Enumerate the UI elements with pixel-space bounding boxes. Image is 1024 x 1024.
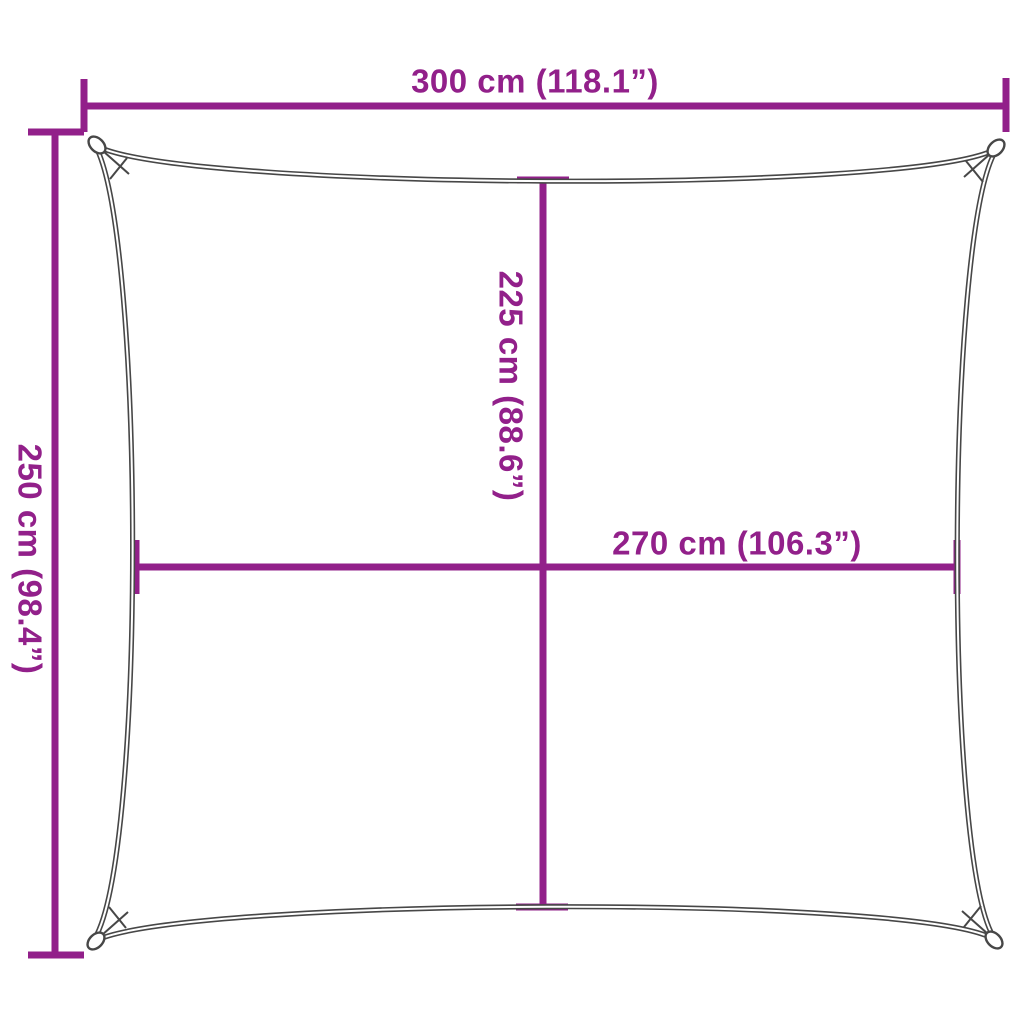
sail-edge-left-gap bbox=[95, 147, 133, 938]
corner-seam-chord bbox=[966, 161, 983, 182]
dimension-diagram: 300 cm (118.1”) 250 cm (98.4”) 225 cm (8… bbox=[0, 0, 1024, 1024]
corner-seam-chord bbox=[110, 158, 127, 179]
sail-edge-left bbox=[95, 147, 133, 938]
corner-seam-chord bbox=[964, 906, 981, 927]
dimension-label-center-width: 270 cm (106.3”) bbox=[612, 527, 862, 560]
dimension-label-left-height: 250 cm (98.4”) bbox=[14, 444, 47, 675]
corner-seam-chord bbox=[109, 907, 126, 928]
sail-edge-top bbox=[99, 147, 994, 181]
sail-edge-bottom bbox=[97, 907, 992, 940]
sail-edge-top-gap bbox=[99, 147, 994, 181]
sail-edge-right-gap bbox=[957, 152, 995, 936]
dimension-label-top-width: 300 cm (118.1”) bbox=[411, 65, 659, 98]
sail-edge-bottom-gap bbox=[97, 907, 992, 940]
diagram-drawing bbox=[0, 0, 1024, 1024]
dimension-label-center-height: 225 cm (88.6”) bbox=[495, 271, 528, 502]
sail-edge-right bbox=[957, 152, 995, 936]
